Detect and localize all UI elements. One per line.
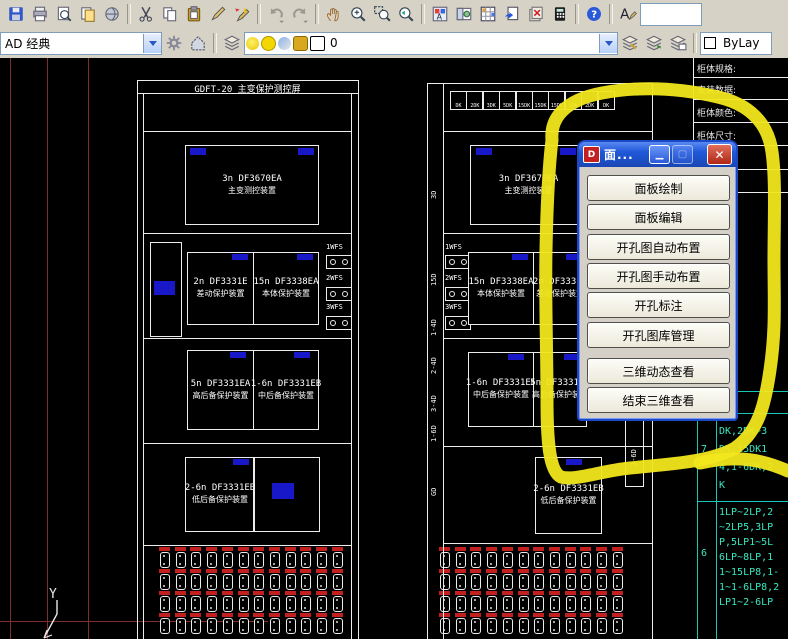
terminal: [270, 596, 280, 612]
terminal: [519, 596, 529, 612]
signal-line: ~2LP5,3LP: [719, 522, 773, 533]
terminal-label: [285, 569, 296, 573]
module-2-6n-DF3331EB: 2-6n DF3331EB低后备保护装置: [535, 457, 602, 534]
terminal: [254, 574, 264, 590]
module-code: 2n DF3331E: [193, 278, 247, 288]
terminal: [471, 618, 481, 634]
sheet-set-manager-icon[interactable]: [500, 2, 524, 26]
separator: [315, 4, 319, 24]
terminal-label: [300, 591, 311, 595]
terminal-label: [439, 569, 450, 573]
sun-icon: [261, 36, 276, 51]
module-code: 2-6n DF3331EB: [533, 485, 603, 495]
wfs-label: 1WFS: [326, 243, 343, 251]
zoom-window-icon[interactable]: [370, 2, 394, 26]
terminal-label: [332, 569, 343, 573]
terminal: [239, 596, 249, 612]
terminal-label: [222, 547, 233, 551]
current-layer-name: 0: [326, 36, 342, 50]
terminal: [534, 574, 544, 590]
terminal: [503, 574, 513, 590]
panel-tools-dialog[interactable]: D 面... ▁ ▢ ✕ 面板绘制面板编辑开孔图自动布置开孔图手动布置开孔标注开…: [577, 140, 738, 421]
zoom-previous-icon[interactable]: [394, 2, 418, 26]
separator: [421, 4, 425, 24]
terminal-label: [455, 569, 466, 573]
terminal: [176, 596, 186, 612]
terminal-label: [300, 569, 311, 573]
pan-icon[interactable]: [322, 2, 346, 26]
dialog-button-5[interactable]: 开孔标注: [587, 292, 730, 318]
panel-outline: [427, 83, 652, 84]
terminal-label: [253, 591, 264, 595]
paste-icon[interactable]: [182, 2, 206, 26]
blue-mark: [154, 281, 175, 295]
copy-icon[interactable]: [158, 2, 182, 26]
module-code: 15n DF3338EA: [468, 278, 533, 288]
terminal-label: [269, 613, 280, 617]
panel-divider: [444, 446, 652, 447]
signal-line: DK,15DK1: [719, 444, 767, 455]
terminal: [613, 574, 623, 590]
construction-line: [47, 58, 48, 639]
blue-mark: [566, 459, 582, 465]
terminal-label: [190, 547, 201, 551]
panel-outline: [358, 80, 359, 639]
terminal: [207, 596, 217, 612]
separator: [257, 4, 261, 24]
terminal-label: [159, 591, 170, 595]
terminal: [471, 552, 481, 568]
terminal: [534, 552, 544, 568]
terminal-label: [332, 591, 343, 595]
panel-divider: [144, 233, 351, 234]
terminal: [487, 552, 497, 568]
terminal: [534, 596, 544, 612]
terminal-label: [332, 547, 343, 551]
terminal-label: [565, 591, 576, 595]
signal-line: 4,1-6DK,2: [719, 462, 773, 473]
terminal-label: [190, 613, 201, 617]
signal-line: DK,2DK~3: [719, 426, 767, 437]
terminal: [503, 552, 513, 568]
terminal-label: [596, 547, 607, 551]
cut-icon[interactable]: [134, 2, 158, 26]
terminal: [550, 574, 560, 590]
terminal: [286, 574, 296, 590]
module-name: 低后备保护装置: [192, 496, 248, 505]
terminal-label: [206, 613, 217, 617]
terminal: [160, 618, 170, 634]
terminal-label: [190, 591, 201, 595]
plot-icon[interactable]: [28, 2, 52, 26]
terminal-label: [253, 613, 264, 617]
terminal: [550, 552, 560, 568]
markup-set-manager-icon[interactable]: [524, 2, 548, 26]
terminal-label: [549, 569, 560, 573]
terminal: [333, 596, 343, 612]
module-name: 本体保护装置: [477, 290, 525, 299]
panel-divider: [144, 545, 351, 546]
undo-icon[interactable]: [264, 2, 288, 26]
module-code: 2-6n DF3331EB: [185, 484, 255, 494]
blue-mark: [294, 352, 310, 358]
save-icon[interactable]: [4, 2, 28, 26]
terminal: [270, 552, 280, 568]
module-name: 高后备保护装置: [193, 392, 249, 401]
dialog-button-4[interactable]: 开孔图手动布置: [587, 263, 730, 289]
terminal: [207, 574, 217, 590]
terminal: [317, 552, 327, 568]
dk-box: 15DK: [548, 91, 565, 110]
terminal-label: [486, 613, 497, 617]
terminal-label: [175, 591, 186, 595]
text-style-icon[interactable]: A: [616, 2, 640, 26]
terminal: [191, 552, 201, 568]
layer-previous-icon[interactable]: [642, 31, 666, 55]
terminal: [440, 574, 450, 590]
layer-combo[interactable]: 0: [244, 32, 618, 55]
terminal: [566, 552, 576, 568]
dialog-button-1[interactable]: 面板绘制: [587, 175, 730, 201]
terminal: [503, 618, 513, 634]
terminal-label: [533, 613, 544, 617]
blue-mark: [190, 148, 206, 155]
panel-rail: [443, 83, 444, 639]
terminal: [597, 596, 607, 612]
terminal-label: [285, 547, 296, 551]
etransmit-icon[interactable]: [100, 2, 124, 26]
wfs-label: 3WFS: [326, 303, 343, 311]
dk-box: DK: [598, 91, 615, 110]
module-name: 差动保护装置: [197, 290, 245, 299]
module-3n-DF3670EA: 3n DF3670EA主变测控装置: [185, 145, 319, 225]
terminal: [223, 596, 233, 612]
edit-pencil-icon[interactable]: [206, 2, 230, 26]
terminal-label: [253, 547, 264, 551]
module-name: 低后备保护装置: [541, 497, 597, 506]
table-line: [697, 501, 788, 502]
terminal: [207, 618, 217, 634]
minimize-icon[interactable]: ▁: [649, 145, 670, 164]
side-label: 15D: [430, 273, 438, 286]
terminal: [176, 618, 186, 634]
signal-line: P,5LP1~5L: [719, 537, 773, 548]
terminal-label: [238, 547, 249, 551]
terminal-label: [565, 569, 576, 573]
terminal: [503, 596, 513, 612]
close-icon[interactable]: ✕: [707, 144, 732, 165]
terminal: [301, 618, 311, 634]
terminal-label: [470, 547, 481, 551]
blue-mark: [476, 148, 492, 155]
redo-icon[interactable]: [288, 2, 312, 26]
terminal: [456, 552, 466, 568]
terminal: [254, 618, 264, 634]
separator: [609, 4, 613, 24]
blue-mark: [272, 483, 294, 499]
terminal-label: [470, 569, 481, 573]
terminal: [550, 618, 560, 634]
side-label: 3D: [430, 191, 438, 199]
terminal-label: [316, 591, 327, 595]
separator: [127, 4, 131, 24]
terminal: [581, 596, 591, 612]
my-workspace-icon[interactable]: [186, 31, 210, 55]
terminal-label: [596, 613, 607, 617]
terminal-label: [612, 569, 623, 573]
terminal: [487, 596, 497, 612]
properties-icon[interactable]: A: [428, 2, 452, 26]
terminal-label: [300, 613, 311, 617]
terminal: [613, 596, 623, 612]
terminal-label: [222, 569, 233, 573]
dialog-button-6[interactable]: 开孔图库管理: [587, 322, 730, 348]
color-swatch: [704, 37, 716, 49]
panel-divider: [444, 543, 652, 544]
terminal: [239, 574, 249, 590]
construction-line: [10, 58, 11, 639]
terminal-label: [486, 591, 497, 595]
terminal: [534, 618, 544, 634]
standard-toolbar: A?A: [0, 0, 788, 29]
lock-icon: [293, 36, 308, 51]
text-style-combo[interactable]: [640, 3, 702, 26]
layer-properties-manager-icon[interactable]: [220, 31, 244, 55]
dialog-button-7[interactable]: 三维动态查看: [587, 358, 730, 384]
terminal-label: [238, 569, 249, 573]
workspace-combo[interactable]: AD 经典: [0, 32, 162, 55]
terminal: [550, 596, 560, 612]
terminal-label: [253, 569, 264, 573]
terminal: [223, 552, 233, 568]
terminal: [223, 574, 233, 590]
signal-line: 1LP~2LP,2: [719, 507, 773, 518]
dialog-title: 面...: [604, 146, 634, 163]
wfs-connector: [326, 287, 352, 301]
terminal: [440, 596, 450, 612]
terminal: [191, 596, 201, 612]
dialog-button-8[interactable]: 结束三维查看: [587, 387, 730, 413]
terminal-label: [549, 591, 560, 595]
blue-mark: [560, 148, 576, 155]
terminal-label: [455, 613, 466, 617]
terminal: [471, 596, 481, 612]
terminal-label: [269, 569, 280, 573]
terminal-label: [533, 591, 544, 595]
terminal: [333, 552, 343, 568]
terminal-label: [470, 591, 481, 595]
dk-box: 1DK: [565, 91, 582, 110]
terminal-label: [596, 591, 607, 595]
terminal: [519, 574, 529, 590]
terminal-label: [518, 547, 529, 551]
plot-preview-icon[interactable]: [52, 2, 76, 26]
module-name: 中后备保护装置: [473, 391, 529, 400]
terminal: [566, 574, 576, 590]
terminal: [176, 552, 186, 568]
terminal: [286, 552, 296, 568]
panel-divider: [144, 443, 351, 444]
terminal: [456, 618, 466, 634]
terminal: [519, 618, 529, 634]
terminal-label: [316, 569, 327, 573]
bulb-icon: [246, 37, 259, 50]
terminal-label: [596, 569, 607, 573]
separator: [213, 33, 217, 53]
terminal-label: [612, 613, 623, 617]
panel-outline: [137, 80, 358, 81]
terminal-label: [455, 547, 466, 551]
color-combo[interactable]: ByLay: [700, 32, 772, 55]
terminal: [301, 552, 311, 568]
workspace-settings-icon[interactable]: [162, 31, 186, 55]
terminal: [597, 618, 607, 634]
workspace-layer-toolbar: AD 经典 0 ByLay: [0, 28, 788, 59]
terminal-label: [580, 613, 591, 617]
terminal-label: [175, 613, 186, 617]
blue-mark: [508, 354, 524, 360]
terminal: [191, 618, 201, 634]
terminal-label: [159, 569, 170, 573]
side-label: 3-4D: [430, 395, 438, 412]
signal-line: 1~15LP8,1-: [719, 567, 779, 578]
terminal: [160, 574, 170, 590]
terminal-label: [502, 547, 513, 551]
wfs-label: 2WFS: [445, 274, 462, 282]
module-code: 3n DF3670EA: [499, 175, 559, 185]
module-3n-DF3670EA: 3n DF3670EA主变测控装置: [470, 145, 587, 225]
terminal-label: [269, 591, 280, 595]
panel-outline: [427, 83, 428, 639]
terminal-label: [206, 591, 217, 595]
table-border: [716, 413, 717, 639]
module-name: 本体保护装置: [262, 290, 310, 299]
terminal: [160, 552, 170, 568]
module-2n-DF3331E: 2n DF3331E差动保护装置: [187, 252, 254, 325]
terminal: [566, 596, 576, 612]
terminal-label: [502, 591, 513, 595]
zoom-realtime-icon[interactable]: [346, 2, 370, 26]
terminal-label: [565, 547, 576, 551]
dk-box: 15DK: [516, 91, 533, 110]
layer-make-current-icon[interactable]: [618, 31, 642, 55]
terminal-label: [486, 569, 497, 573]
group-number: 7: [701, 444, 707, 455]
module-1-6n-DF3331EB: 1-6n DF3331EB中后备保护装置: [253, 350, 319, 430]
signal-line: K: [719, 480, 725, 491]
terminal-label: [222, 613, 233, 617]
terminal: [239, 552, 249, 568]
terminal: [566, 618, 576, 634]
tool-palettes-icon[interactable]: [476, 2, 500, 26]
dk-box: 2DK: [466, 91, 483, 110]
terminal: [270, 574, 280, 590]
module-15n-DF3338EA: 15n DF3338EA本体保护装置: [253, 252, 319, 325]
designcenter-icon[interactable]: [452, 2, 476, 26]
dialog-app-icon: D: [583, 146, 600, 163]
terminal-label: [533, 569, 544, 573]
viewport-freeze-icon: [278, 37, 291, 50]
blue-mark: [298, 148, 314, 155]
terminal: [286, 596, 296, 612]
terminal-label: [238, 613, 249, 617]
color-swatch: [310, 36, 325, 51]
workspace-dropdown-icon[interactable]: [143, 34, 161, 53]
terminal: [176, 574, 186, 590]
wfs-label: 1WFS: [445, 243, 462, 251]
terminal-label: [533, 547, 544, 551]
panel-divider: [144, 131, 351, 132]
dialog-titlebar[interactable]: D 面... ▁ ▢ ✕: [579, 142, 736, 167]
terminal: [487, 618, 497, 634]
module-code: 1-6n DF3331EB: [466, 379, 536, 389]
layer-states-manager-icon[interactable]: [666, 31, 690, 55]
side-label: 2-4D: [430, 357, 438, 374]
terminal: [581, 618, 591, 634]
panel-rail: [143, 93, 144, 639]
terminal: [519, 552, 529, 568]
panel-divider: [144, 338, 351, 339]
terminal: [456, 596, 466, 612]
blue-mark: [512, 254, 528, 260]
module-code: 15n DF3338EA: [253, 278, 318, 288]
terminal: [440, 552, 450, 568]
terminal: [270, 618, 280, 634]
terminal-label: [439, 613, 450, 617]
terminal-label: [175, 569, 186, 573]
layer-dropdown-icon[interactable]: [599, 34, 617, 53]
dk-box: DK: [450, 91, 467, 110]
dialog-button-3[interactable]: 开孔图自动布置: [587, 234, 730, 260]
terminal: [286, 618, 296, 634]
terminal: [471, 574, 481, 590]
module-code: 3n DF3670EA: [222, 175, 282, 185]
terminal-label: [175, 547, 186, 551]
maximize-icon: ▢: [672, 145, 693, 164]
dk-box: 3DK: [483, 91, 500, 110]
terminal-label: [486, 547, 497, 551]
module-name: 中后备保护装置: [258, 392, 314, 401]
module-code: 5n DF3331EA: [191, 380, 251, 390]
terminal-label: [565, 613, 576, 617]
terminal: [191, 574, 201, 590]
wfs-connector: [326, 255, 352, 269]
terminal: [487, 574, 497, 590]
dk-box: 15DK: [532, 91, 549, 110]
help-icon[interactable]: ?: [582, 2, 606, 26]
blue-mark: [230, 352, 246, 358]
group-number: 6: [701, 548, 707, 559]
terminal: [301, 596, 311, 612]
svg-text:?: ?: [591, 10, 597, 21]
terminal-label: [300, 547, 311, 551]
panel-divider: [444, 131, 652, 132]
blue-mark: [232, 254, 248, 260]
module-2-6n-DF3331EB: 2-6n DF3331EB低后备保护装置: [185, 457, 255, 532]
svg-text:A: A: [437, 13, 443, 22]
terminal-label: [332, 613, 343, 617]
color-value: ByLay: [719, 36, 763, 50]
quickcalc-icon[interactable]: [548, 2, 572, 26]
terminal-label: [238, 591, 249, 595]
separator: [575, 4, 579, 24]
terminal-label: [316, 613, 327, 617]
module-name: 主变测控装置: [228, 187, 276, 196]
dialog-button-2[interactable]: 面板编辑: [587, 204, 730, 230]
match-properties-icon[interactable]: [230, 2, 254, 26]
terminal-label: [518, 613, 529, 617]
publish-icon[interactable]: [76, 2, 100, 26]
